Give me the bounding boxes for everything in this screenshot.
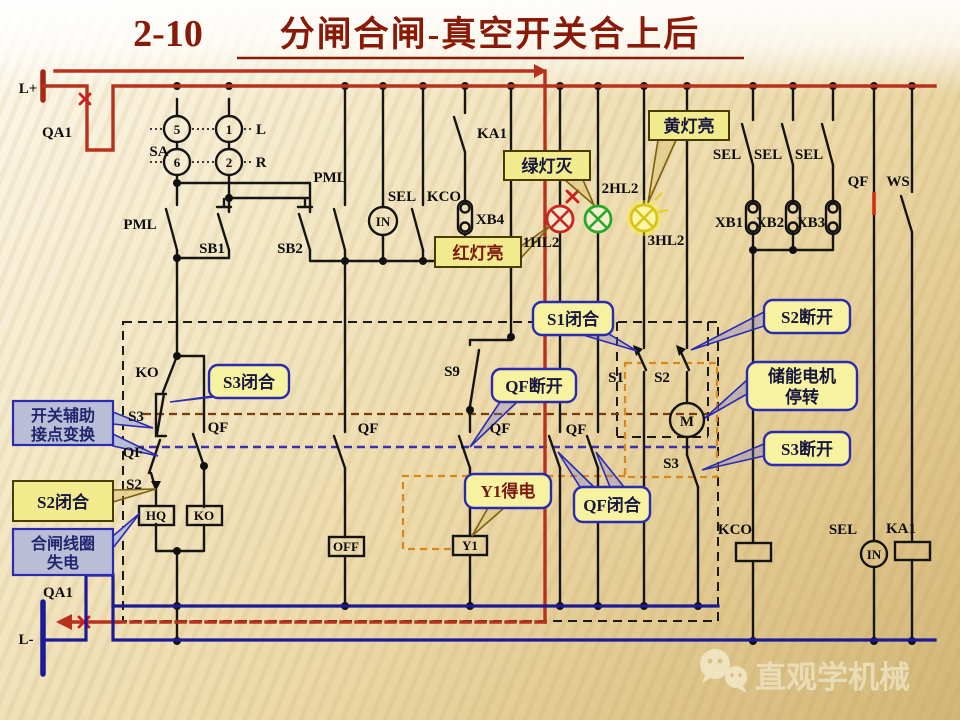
text-motor-stop-1: 储能电机 [768,366,836,386]
text-closing-coil-2: 失电 [47,553,79,572]
text-s3-open: S3断开 [781,439,833,459]
label-s3-right: S3 [663,456,679,472]
label-sb2: SB2 [277,241,303,257]
label-s9: S9 [444,364,460,380]
text-s2-closed: S2闭合 [37,492,90,512]
label-sel-mid: SEL [388,189,416,205]
label-xb1: XB1 [715,215,743,231]
sel3-contact-blade [822,124,833,165]
label-sel-1: SEL [713,147,741,163]
in-text-bottom: IN [867,547,882,562]
s9-contact-blade [470,350,479,406]
sa-contact-2: 2 [226,155,233,170]
label-ws: WS [886,174,909,190]
label-qf-off: QF [358,421,379,437]
qf-contact-ko [193,434,204,466]
label-sel-3: SEL [795,147,823,163]
ws-contact-blade [901,196,912,232]
sa-contact-5: 5 [174,122,181,137]
text-s3-closed: S3闭合 [223,372,276,392]
watermark: 直观学机械 [700,649,910,695]
label-qa1-top: QA1 [42,125,72,141]
green-lamp-2hl2 [585,206,611,232]
label-ka1-bottom: KA1 [886,521,916,537]
motor-text: M [680,414,694,430]
label-qa1-bottom: QA1 [43,585,73,601]
text-s2-open: S2断开 [781,307,833,327]
sa-contact-6: 6 [174,155,181,170]
s3-contact-blade [687,455,698,487]
qf-contact-y1 [459,436,470,468]
label-1hl2: 1HL2 [523,235,560,251]
label-sb1: SB1 [199,241,225,257]
label-3hl2: 3HL2 [648,233,685,249]
label-kco-bottom: KCO [718,522,752,538]
ka1-coil [895,542,930,560]
y1-callout-tail [472,508,504,536]
label-pml-1: PML [123,217,156,233]
label-sel-bottom: SEL [829,522,857,538]
text-y1-energized: Y1得电 [481,481,536,501]
label-qf-left: QF [123,445,144,461]
label-ko-contact: KO [135,365,158,381]
sel2-contact-blade [782,124,793,165]
label-s3-left: S3 [128,409,144,425]
text-red-lamp-on: 红灯亮 [453,243,504,263]
schematic-canvas: 2-10 分闸合闸-真空开关合上后 L+ QA1 L- QA1 SA 5 1 L… [0,0,960,720]
text-motor-stop-2: 停转 [785,387,819,407]
label-sa: SA [149,144,168,160]
slide-circuit-diagram: 2-10 分闸合闸-真空开关合上后 L+ QA1 L- QA1 SA 5 1 L… [0,0,960,720]
text-aux-contact-1: 开关辅助 [31,406,95,425]
sel1-contact-blade [742,124,753,165]
label-qf-right: QF [848,174,869,190]
hq-box-text: HQ [146,508,166,523]
off-box-text: OFF [333,539,359,554]
ko-contact-blade [163,356,177,392]
label-qf-y1: QF [490,421,511,437]
label-l-plus: L+ [19,81,38,97]
kco-coil [736,543,771,561]
label-ka1-top: KA1 [477,126,507,142]
flow-arrow-left [56,614,72,630]
in-text-mid: IN [376,214,391,229]
title-number: 2-10 [133,13,203,55]
label-sel-2: SEL [754,147,782,163]
label-qf-ko: QF [208,420,229,436]
sa-contact-1: 1 [226,122,233,137]
page-title: 分闸合闸-真空开关合上后 [280,15,701,54]
text-aux-contact-2: 接点变换 [31,425,96,444]
label-xb2: XB2 [756,215,784,231]
kco-contact-blade [412,209,423,250]
pml-contact-blade [166,209,177,250]
label-r: R [256,155,267,171]
label-l-minus: L- [19,632,34,648]
text-qf-closed: QF闭合 [583,495,642,515]
label-2hl2: 2HL2 [602,181,639,197]
label-xb4: XB4 [476,212,505,228]
ko-box-text: KO [194,508,214,523]
wechat-icon [700,649,747,693]
qf-contact-off [334,436,345,468]
red-lamp-1hl2 [547,206,573,232]
label-pml-2: PML [313,170,346,186]
y1-box-text: Y1 [462,538,478,553]
label-kco-mid: KCO [427,189,461,205]
label-qf-lamp: QF [566,422,587,438]
label-xb3: XB3 [797,215,825,231]
ka1-contact-blade [454,117,465,152]
label-s1: S1 [608,370,624,386]
watermark-text: 直观学机械 [755,660,910,695]
pml2-contact-blade [334,209,345,250]
text-s1-closed: S1闭合 [547,309,600,329]
text-yellow-lamp-on: 黄灯亮 [664,116,715,136]
text-green-lamp-off: 绿灯灭 [522,156,574,176]
green-lamp-off-x-mark [567,191,578,202]
label-l: L [256,122,266,138]
label-s2-left: S2 [126,477,142,493]
label-s2-right: S2 [654,370,670,386]
text-qf-open: QF断开 [505,376,563,396]
text-closing-coil-1: 合闸线圈 [31,534,95,553]
